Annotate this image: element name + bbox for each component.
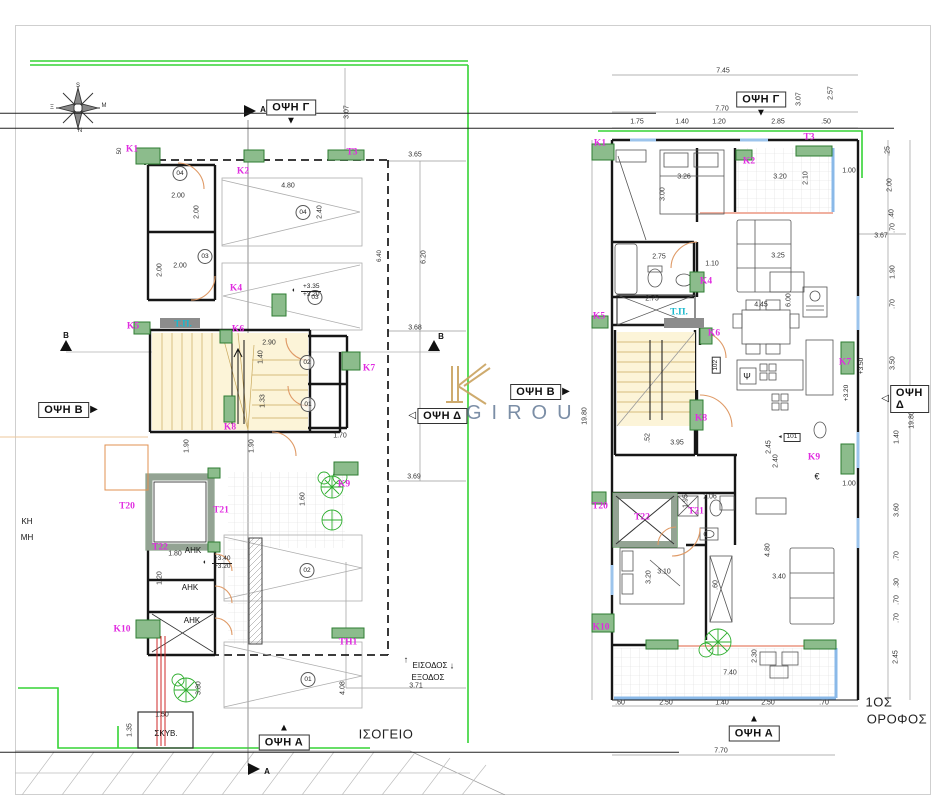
- annotation-room: ΜΗ: [21, 534, 33, 542]
- annotation-dim: 3.65: [408, 152, 422, 159]
- annotation-dimv: 1.40: [890, 434, 904, 441]
- annotation-dimv: 2.45: [889, 654, 903, 661]
- elevation-marker: ΟΨΗ Γ▼: [736, 92, 786, 119]
- annotation-dimv: 1.33: [256, 398, 270, 405]
- elevation-label: ΟΨΗ Γ: [736, 92, 786, 108]
- annotation-dim: 1.80: [168, 551, 182, 558]
- annotation-dimv: .25: [883, 148, 893, 155]
- annotation-room: ΕΙΣΟΔΟΣ: [413, 662, 448, 670]
- annotation-cy: Τ.Π.: [174, 320, 192, 330]
- annotation-tiny: Ξ: [50, 105, 54, 111]
- annotation-col: K4: [700, 277, 712, 287]
- annotation-circ: 04: [173, 163, 188, 181]
- annotation-lvl2: +0.50+0.30: [0, 511, 693, 525]
- annotation-dim: 3.71: [409, 683, 423, 690]
- elevation-marker: ΟΨΗ Γ▼: [266, 100, 316, 127]
- annotation-dim: 2.90: [262, 340, 276, 347]
- annotation-dimv: 1.95: [679, 498, 693, 505]
- annotation-dim: 1.10: [705, 261, 719, 268]
- annotation-dim: 7.70: [714, 748, 728, 755]
- annotation-dim: 1.40: [715, 700, 729, 707]
- annotation-dimv: .52: [643, 435, 653, 442]
- annotation-lvl2: +0.40+0.30: [0, 446, 816, 460]
- annotation-col: K1: [594, 139, 606, 149]
- annotation-dimv: 4.80: [761, 547, 775, 554]
- annotation-dimv: 2.00: [153, 267, 167, 274]
- elevation-marker: ▲ΟΨΗ Α: [729, 715, 780, 742]
- annotation-col: K9: [808, 453, 820, 463]
- annotation-dim: 2.06: [703, 494, 717, 501]
- annotation-circ: 01: [301, 669, 316, 687]
- annotation-dim: 1.00: [842, 168, 856, 175]
- annotation-dim: 2.85: [771, 119, 785, 126]
- elevation-arrow-icon: ▼: [286, 117, 296, 127]
- annotation-room: ΣΚΥΒ.: [154, 730, 177, 738]
- annotation-dim: 2.50: [659, 700, 673, 707]
- elevation-arrow-icon: ▲: [749, 715, 759, 725]
- annotation-dimv: .70: [888, 301, 898, 308]
- annotation-tiny: S: [76, 83, 80, 89]
- annotation-room: ΚΗ: [21, 518, 32, 526]
- elevation-label: ΟΨΗ Β: [38, 402, 89, 418]
- annotation-sym: ↓: [450, 662, 455, 671]
- annotation-dim: 1.40: [675, 119, 689, 126]
- annotation-dim: 3.95: [670, 440, 684, 447]
- elevation-marker: ΟΨΗ Β▶: [38, 402, 98, 418]
- architectural-drawing: GIROU +0.40+0.353.07SΞMNAABB50K1K2T3K4K5…: [0, 0, 946, 795]
- annotation-lvl2: +0.40+0.30: [0, 296, 735, 310]
- annotation-dimv: .70: [892, 597, 902, 604]
- annotation-room: ΑΗΚ: [184, 617, 200, 625]
- annotation-dimv: 1.35: [123, 727, 137, 734]
- annotation-col: K9: [338, 480, 350, 490]
- annotation-col: K8: [695, 414, 707, 424]
- annotation-layer: +0.40+0.353.07SΞMNAABB50K1K2T3K4K5Τ.Π.K6…: [0, 0, 946, 795]
- annotation-dimv: 3.00: [656, 191, 670, 198]
- annotation-col: T20: [592, 502, 608, 512]
- annotation-lvl2: +3.35+3.20: [292, 284, 946, 298]
- annotation-dim: 7.70: [715, 106, 729, 113]
- annotation-dimv: 6.00: [782, 297, 796, 304]
- annotation-dimv: 2.00: [883, 182, 897, 189]
- annotation-col: K6: [232, 325, 244, 335]
- annotation-lvl2: +0.40+0.30: [0, 709, 733, 723]
- annotation-dimv: 2.40: [313, 209, 327, 216]
- annotation-dim: 7.40: [723, 670, 737, 677]
- annotation-dim: 7.45: [716, 68, 730, 75]
- elevation-label: ΟΨΗ Γ: [266, 100, 316, 116]
- annotation-dimv: 1.90: [886, 269, 900, 276]
- elevation-marker: ΟΨΗ Β▶: [510, 384, 570, 400]
- annotation-dimv: 3.80: [192, 685, 206, 692]
- annotation-lvlv: +3.20: [839, 390, 855, 397]
- annotation-cy: Τ.Π.: [670, 308, 688, 318]
- annotation-dimv: .40: [887, 211, 897, 218]
- annotation-col: K7: [363, 364, 375, 374]
- annotation-lvl: +0.30: [0, 744, 679, 753]
- annotation-col: K5: [593, 312, 605, 322]
- annotation-dimv: 2.40: [769, 458, 783, 465]
- annotation-sect: B: [63, 332, 69, 340]
- elevation-label: ΟΨΗ Δ: [890, 385, 929, 413]
- annotation-sect: A: [260, 106, 266, 114]
- annotation-dim: 2.75: [652, 254, 666, 261]
- annotation-circ: 02: [300, 352, 315, 370]
- annotation-dimv: 3.20: [642, 574, 656, 581]
- annotation-col: K10: [593, 623, 610, 633]
- annotation-room: ΕΞΟΔΟΣ: [412, 674, 445, 682]
- annotation-col: K6: [708, 329, 720, 339]
- annotation-dimv: 19.80: [903, 417, 921, 424]
- annotation-big: ΟΡΟΦΟΣ: [867, 713, 927, 726]
- elevation-label: ΟΨΗ Α: [259, 735, 310, 751]
- annotation-dim: 3.40: [772, 574, 786, 581]
- elevation-label: ΟΨΗ Α: [729, 726, 780, 742]
- annotation-dimv: 4.08: [336, 685, 350, 692]
- annotation-dimv: 2.45: [762, 444, 776, 451]
- annotation-dim: 1.75: [630, 119, 644, 126]
- elevation-marker: ▲ΟΨΗ Α: [259, 724, 310, 751]
- annotation-col: K1: [126, 145, 138, 155]
- annotation-sym: ↑: [404, 656, 409, 665]
- annotation-dimv: 1.40: [254, 354, 268, 361]
- annotation-room: ΑΗΚ: [185, 547, 201, 555]
- annotation-col: T3: [803, 133, 814, 143]
- annotation-col: T21: [688, 507, 704, 517]
- annotation-col: T3: [346, 148, 357, 158]
- annotation-dimv: 3.50: [886, 360, 900, 367]
- annotation-circ: 04: [296, 202, 311, 220]
- annotation-dimv: 3.60: [890, 507, 904, 514]
- annotation-dimv: 6.20: [417, 254, 431, 261]
- elevation-arrow-icon: ◁: [408, 411, 416, 421]
- annotation-dimv: 1.90: [245, 443, 259, 450]
- annotation-lvl2: +0.45+0.30: [0, 238, 663, 252]
- annotation-dimv: 3.07: [792, 96, 806, 103]
- annotation-col: K7: [839, 358, 851, 368]
- annotation-lvlv: +3.50: [854, 363, 870, 370]
- annotation-col: K10: [114, 625, 131, 635]
- elevation-arrow-icon: ▶: [562, 387, 570, 397]
- annotation-dim: .60: [615, 700, 625, 707]
- annotation-dim: 3.69: [407, 474, 421, 481]
- annotation-dimv: 19.80: [576, 413, 594, 420]
- annotation-sect: A: [264, 768, 270, 776]
- annotation-col: T22: [152, 543, 168, 553]
- annotation-col: K2: [743, 157, 755, 167]
- annotation-dim: 4.80: [281, 183, 295, 190]
- annotation-circ: 01: [301, 394, 316, 412]
- annotation-dim: 1.70: [333, 433, 347, 440]
- annotation-tiny: M: [102, 103, 107, 109]
- annotation-col: K2: [237, 167, 249, 177]
- annotation-dimv: .70: [892, 615, 902, 622]
- annotation-col: K5: [127, 322, 139, 332]
- elevation-arrow-icon: ▲: [279, 724, 289, 734]
- annotation-dimv: .70: [892, 553, 902, 560]
- annotation-dimv: 2.30: [748, 653, 762, 660]
- annotation-dimv: 1.90: [180, 443, 194, 450]
- annotation-dim: .50: [821, 119, 831, 126]
- elevation-arrow-icon: ◁: [881, 394, 889, 404]
- annotation-dim: 4.45: [754, 302, 768, 309]
- annotation-room: ΑΗΚ: [182, 584, 198, 592]
- annotation-dim: 2.00: [173, 263, 187, 270]
- annotation-lvl: +0.35: [0, 120, 894, 129]
- annotation-dimv: 2.10: [799, 175, 813, 182]
- annotation-dimv: 1.60: [296, 496, 310, 503]
- annotation-lvl: +0.40: [0, 105, 656, 114]
- elevation-marker: ◁ΟΨΗ Δ: [881, 385, 929, 413]
- annotation-dim: 3.20: [773, 174, 787, 181]
- annotation-dim: 2.75: [645, 296, 659, 303]
- annotation-dim: 3.67: [874, 233, 888, 240]
- elevation-marker: ◁ΟΨΗ Δ: [408, 408, 467, 424]
- annotation-dimv: 3.07: [340, 109, 354, 116]
- annotation-ubox: 101: [778, 426, 801, 442]
- annotation-sym: €: [814, 473, 819, 482]
- annotation-dim: 3.25: [771, 253, 785, 260]
- annotation-dim: 1.20: [712, 119, 726, 126]
- annotation-lvl2: +3.40+3.20: [203, 556, 946, 570]
- annotation-uboxv: 102: [708, 354, 725, 370]
- annotation-dim: 3.68: [408, 325, 422, 332]
- annotation-sym: Ψ: [743, 373, 751, 382]
- annotation-tinyv: 50: [117, 148, 124, 154]
- annotation-dim: .70: [819, 700, 829, 707]
- annotation-tiny: N: [78, 128, 82, 134]
- elevation-arrow-icon: ▼: [756, 109, 766, 119]
- annotation-col: T22: [634, 513, 650, 523]
- annotation-dimv: .70: [888, 225, 898, 232]
- annotation-dim: 2.50: [761, 700, 775, 707]
- annotation-dimv: 2.57: [824, 90, 838, 97]
- annotation-circ: 03: [198, 246, 213, 264]
- elevation-label: ΟΨΗ Δ: [417, 408, 467, 424]
- annotation-dim: 3.26: [677, 174, 691, 181]
- annotation-col: K8: [224, 423, 236, 433]
- annotation-big: ΙΣΟΓΕΙΟ: [359, 728, 414, 741]
- annotation-big: 1ΟΣ: [866, 696, 893, 709]
- annotation-dim: 1.00: [842, 481, 856, 488]
- annotation-col: ΤΗ1: [339, 638, 357, 648]
- annotation-tinyv: 6.40: [374, 253, 386, 259]
- annotation-col: K4: [230, 284, 242, 294]
- annotation-dim: 3.10: [657, 569, 671, 576]
- annotation-dimv: 1.20: [153, 575, 167, 582]
- elevation-arrow-icon: ▶: [90, 405, 98, 415]
- elevation-label: ΟΨΗ Β: [510, 384, 561, 400]
- annotation-dimv: .30: [892, 580, 902, 587]
- annotation-dim: 2.00: [171, 193, 185, 200]
- annotation-dimv: .60: [711, 582, 721, 589]
- annotation-dimv: 2.00: [190, 209, 204, 216]
- annotation-sect: B: [438, 333, 444, 341]
